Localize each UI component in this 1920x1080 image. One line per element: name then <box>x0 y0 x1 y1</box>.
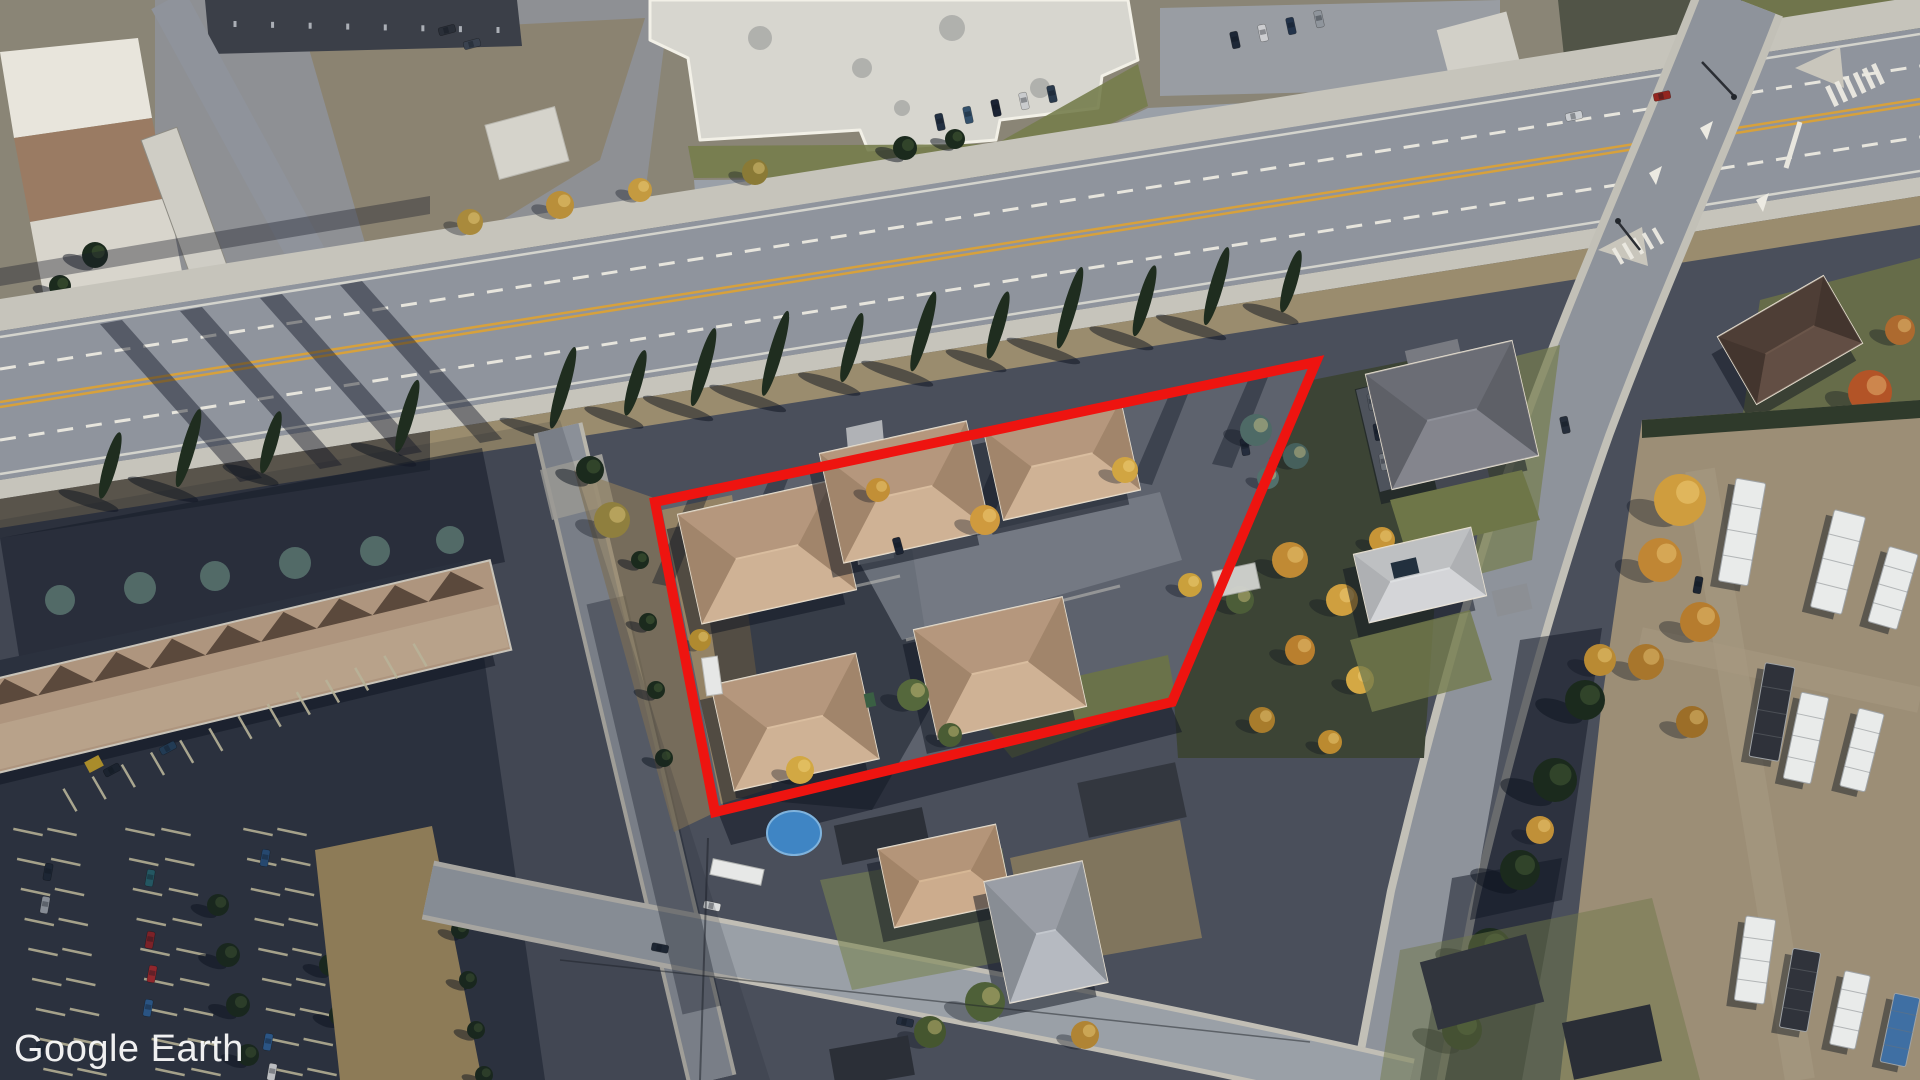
conifer-top <box>1515 855 1535 875</box>
tree-highlight <box>1697 607 1715 625</box>
tree-highlight <box>1380 530 1392 542</box>
traffic-light <box>1731 94 1737 100</box>
tree-highlight <box>1690 710 1704 724</box>
tree-highlight <box>558 195 571 208</box>
tree-highlight <box>609 506 625 522</box>
conifer-top <box>57 278 68 289</box>
tree-highlight <box>1123 460 1135 472</box>
conifer-top <box>1580 685 1600 705</box>
roof-stain <box>852 58 872 78</box>
roof-stain <box>939 15 965 41</box>
tree-highlight <box>928 1020 942 1034</box>
conifer-top <box>902 139 914 151</box>
google-earth-viewport: Google Earth <box>0 0 1920 1080</box>
tree-highlight <box>1287 547 1303 563</box>
conifer-top <box>646 615 655 624</box>
roof-stain <box>894 100 910 116</box>
car-glass <box>1695 581 1702 587</box>
tree-highlight <box>1328 733 1339 744</box>
tree-highlight <box>876 481 887 492</box>
tree-highlight <box>1598 648 1612 662</box>
tree-highlight <box>638 181 649 192</box>
tree-highlight <box>1898 319 1912 333</box>
tree-highlight <box>1254 418 1268 432</box>
tree-highlight <box>1657 544 1677 564</box>
traffic-light <box>1615 218 1621 224</box>
tree-highlight <box>1867 376 1887 396</box>
tree-highlight <box>982 987 1000 1005</box>
conifer-top <box>587 460 601 474</box>
pool <box>767 811 821 855</box>
roof-stain <box>748 26 772 50</box>
tree-highlight <box>1260 710 1272 722</box>
conifer-top <box>953 132 963 142</box>
tree-highlight <box>948 726 959 737</box>
tree-highlight <box>798 760 811 773</box>
aerial-imagery <box>0 0 1920 1080</box>
tree-highlight <box>1294 446 1306 458</box>
conifer-top <box>1550 764 1572 786</box>
tree-highlight <box>1676 481 1699 504</box>
tree-highlight <box>468 212 480 224</box>
conifer-top <box>638 553 647 562</box>
tree-highlight <box>1188 576 1199 587</box>
tree-highlight <box>1538 820 1551 833</box>
tree-highlight <box>983 509 997 523</box>
tree-highlight <box>1643 649 1659 665</box>
tree-highlight <box>1083 1025 1096 1038</box>
tree-highlight <box>911 683 925 697</box>
conifer-top <box>654 683 663 692</box>
tree-highlight <box>698 632 708 642</box>
tree-highlight <box>753 162 765 174</box>
tree-highlight <box>1298 639 1312 653</box>
